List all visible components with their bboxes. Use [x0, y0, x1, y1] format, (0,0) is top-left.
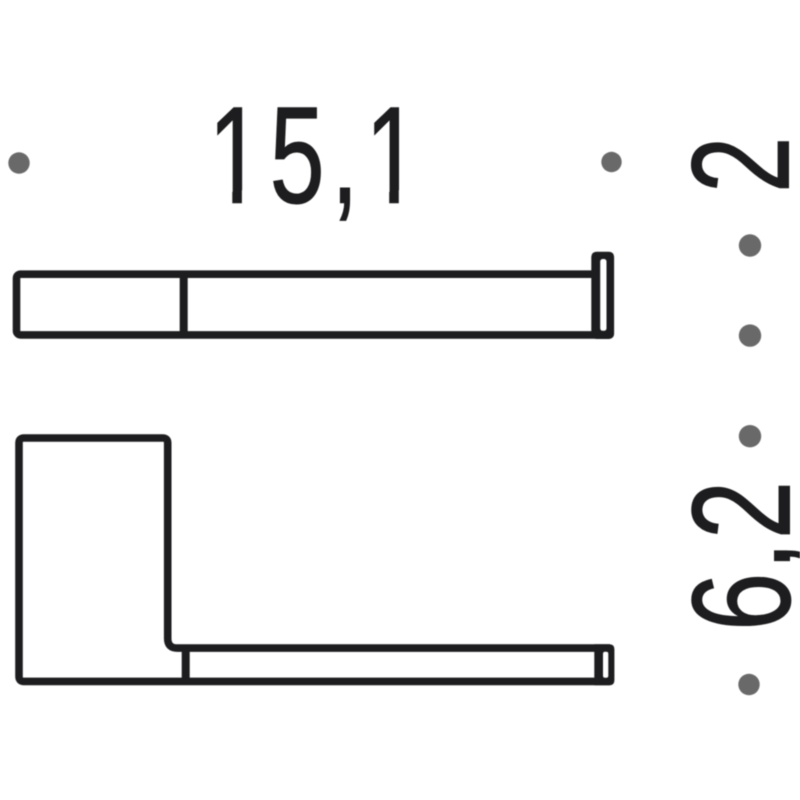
svg-text:2: 2	[663, 137, 800, 193]
svg-text:15,1: 15,1	[208, 79, 426, 233]
svg-text:6,2: 6,2	[664, 479, 800, 631]
